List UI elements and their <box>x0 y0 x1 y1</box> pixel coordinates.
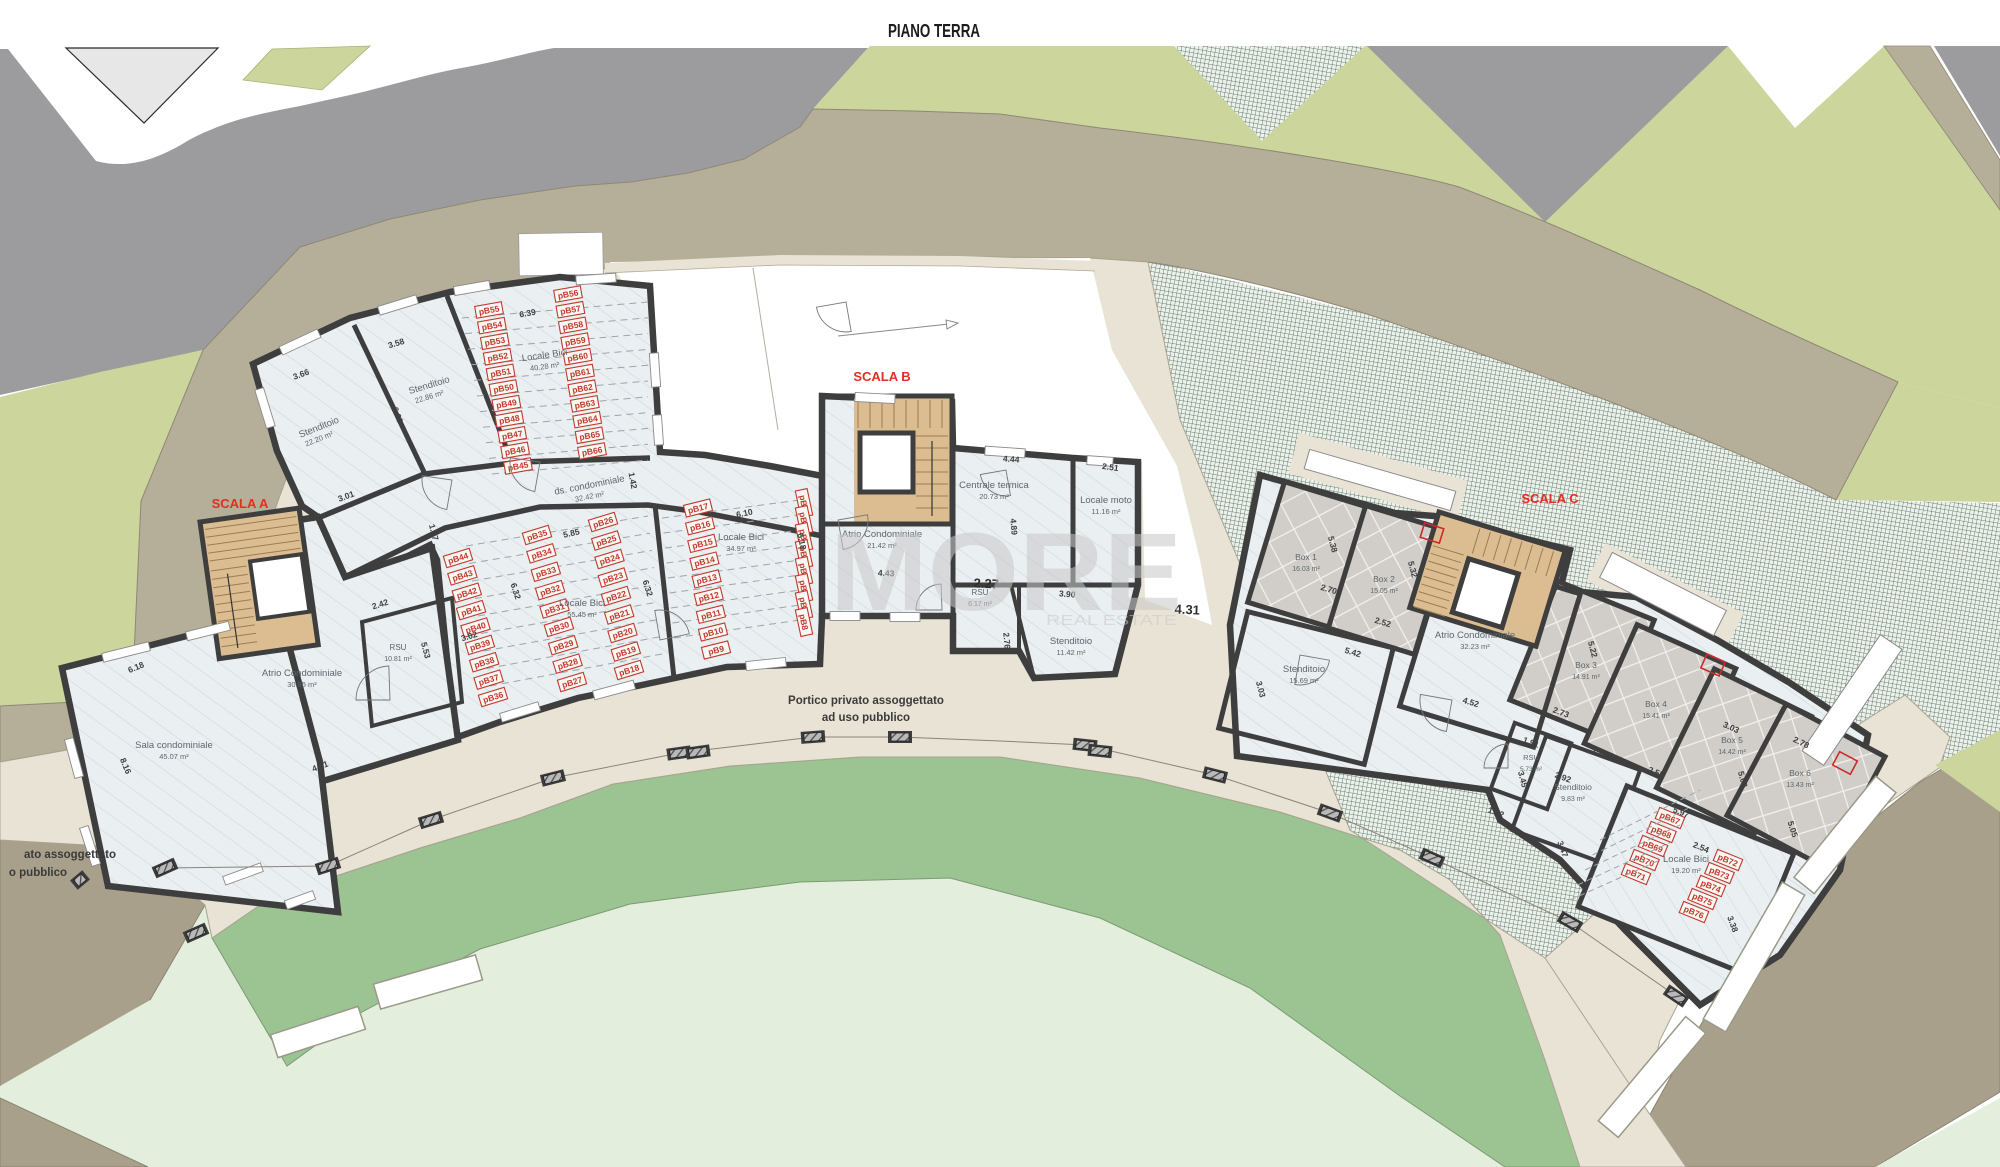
svg-text:Locale moto: Locale moto <box>1080 495 1132 506</box>
svg-text:32.23 m²: 32.23 m² <box>1460 642 1490 651</box>
svg-text:Box 6: Box 6 <box>1789 768 1811 778</box>
svg-text:Box 2: Box 2 <box>1373 574 1395 584</box>
svg-text:55.45 m²: 55.45 m² <box>567 610 597 619</box>
svg-text:30.95 m²: 30.95 m² <box>287 680 317 689</box>
svg-text:10.81 m²: 10.81 m² <box>384 656 412 663</box>
svg-text:Locale Bici: Locale Bici <box>1663 854 1709 865</box>
svg-text:Locale Bici: Locale Bici <box>559 598 605 609</box>
svg-text:16.03 m²: 16.03 m² <box>1292 566 1320 573</box>
svg-text:13.43 m²: 13.43 m² <box>1786 782 1814 789</box>
svg-text:19.20 m²: 19.20 m² <box>1671 866 1701 875</box>
svg-text:34.97 m²: 34.97 m² <box>726 544 756 553</box>
svg-text:Atrio Condominiale: Atrio Condominiale <box>1435 630 1515 641</box>
svg-text:4.44: 4.44 <box>1003 453 1020 464</box>
svg-text:RSU: RSU <box>390 643 407 652</box>
svg-text:Stenditoio: Stenditoio <box>1283 664 1325 675</box>
svg-text:REAL ESTATE: REAL ESTATE <box>1046 612 1177 629</box>
svg-text:Portico privato assoggettato: Portico privato assoggettato <box>788 695 944 707</box>
svg-text:SCALA A: SCALA A <box>212 496 269 511</box>
svg-text:Sala condominiale: Sala condominiale <box>135 740 213 751</box>
svg-text:Stenditoio: Stenditoio <box>1050 636 1092 647</box>
svg-text:15.41 m²: 15.41 m² <box>1642 713 1670 720</box>
svg-text:45.07 m²: 45.07 m² <box>159 752 189 761</box>
svg-text:14.91 m²: 14.91 m² <box>1572 674 1600 681</box>
svg-text:Box 4: Box 4 <box>1645 699 1667 709</box>
svg-text:9.83 m²: 9.83 m² <box>1561 796 1585 803</box>
svg-text:SCALA C: SCALA C <box>1521 491 1579 506</box>
svg-text:11.42 m²: 11.42 m² <box>1056 648 1086 657</box>
svg-text:14.42 m²: 14.42 m² <box>1718 749 1746 756</box>
svg-text:Box 5: Box 5 <box>1721 735 1743 745</box>
svg-text:Stenditoio: Stenditoio <box>1554 782 1592 792</box>
svg-text:Box 3: Box 3 <box>1575 660 1597 670</box>
svg-text:PIANO TERRA: PIANO TERRA <box>888 21 980 41</box>
svg-text:Box 1: Box 1 <box>1295 552 1317 562</box>
svg-text:o pubblico: o pubblico <box>9 867 67 879</box>
svg-text:15.05 m²: 15.05 m² <box>1370 588 1398 595</box>
svg-text:ad uso pubblico: ad uso pubblico <box>822 712 910 724</box>
svg-text:SCALA B: SCALA B <box>853 369 910 384</box>
svg-text:2.76: 2.76 <box>1001 632 1012 650</box>
svg-text:Atrio Condominiale: Atrio Condominiale <box>262 668 342 679</box>
svg-text:ato assoggettato: ato assoggettato <box>24 849 116 861</box>
svg-text:Centrale termica: Centrale termica <box>959 480 1029 491</box>
svg-text:Locale Bici: Locale Bici <box>718 532 764 543</box>
svg-text:RSU: RSU <box>1523 753 1539 762</box>
svg-text:15.69 m²: 15.69 m² <box>1289 676 1319 685</box>
svg-text:20.73 m²: 20.73 m² <box>979 492 1009 501</box>
